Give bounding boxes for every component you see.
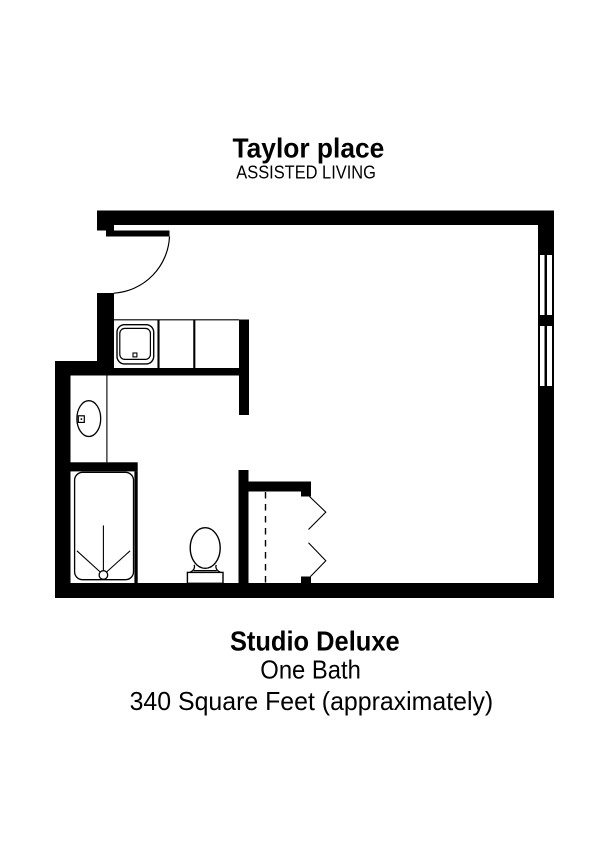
svg-text:Taylor place: Taylor place: [233, 133, 385, 164]
svg-text:One Bath: One Bath: [260, 654, 361, 684]
svg-text:ASSISTED LIVING: ASSISTED LIVING: [236, 161, 376, 182]
svg-text:340 Square Feet (appraximately: 340 Square Feet (appraximately): [130, 686, 494, 716]
svg-text:Studio Deluxe: Studio Deluxe: [230, 625, 400, 656]
